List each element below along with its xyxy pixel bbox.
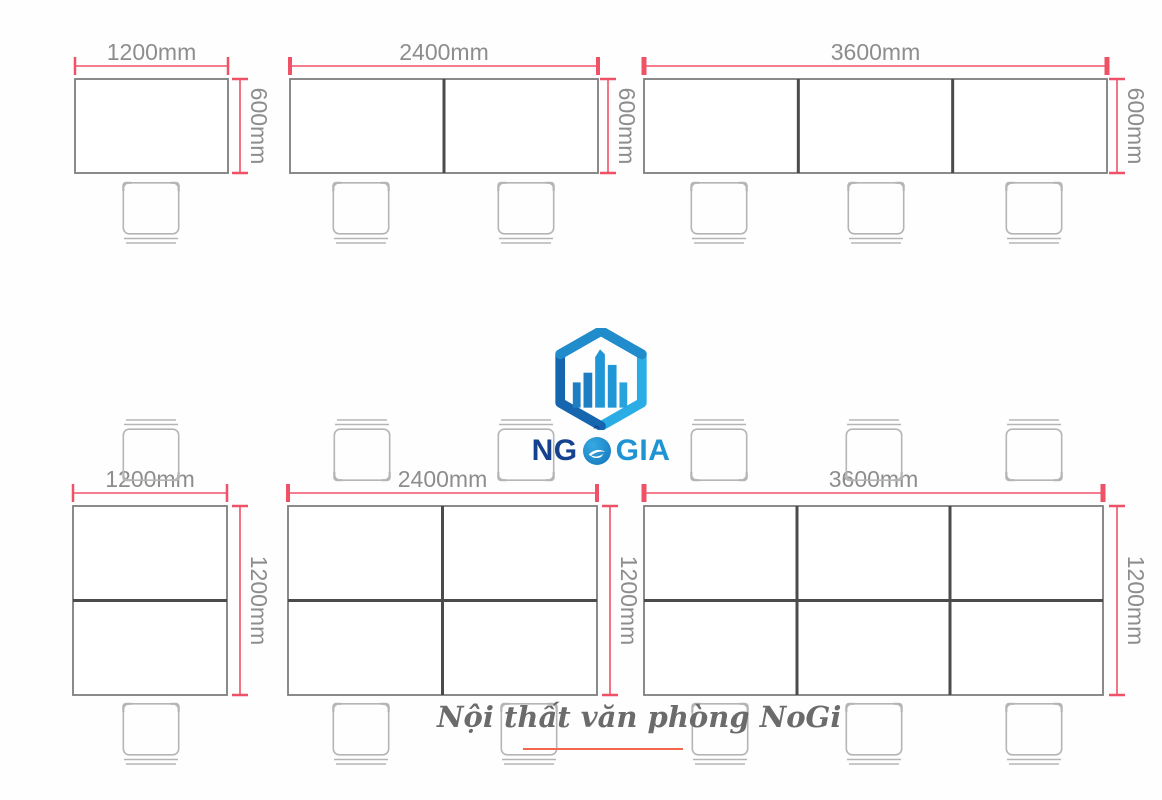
caption-underline (523, 748, 683, 750)
wordmark-o-emblem: ˆ (583, 437, 611, 465)
brand-logo: NG ˆ GIA (501, 328, 701, 468)
width-dimension-label: 3600mm (831, 39, 920, 65)
desk-surface (75, 79, 228, 173)
width-dimension-label: 2400mm (399, 39, 488, 65)
desk-1200x1200: 1200mm1200mm (73, 420, 272, 764)
dimension-diagram-page: 1200mm600mm2400mm600mm3600mm600mm1200mm1… (0, 0, 1162, 800)
chair (1006, 183, 1061, 243)
chair (333, 183, 388, 243)
wordmark-ng: NG (532, 434, 578, 468)
caption-text: Nội thất văn phòng NoGi (437, 700, 782, 734)
width-dimension-label: 1200mm (105, 466, 194, 492)
chair (691, 183, 746, 243)
hexagon-city-logo-icon (552, 328, 650, 430)
wordmark-gia: GIA (616, 434, 671, 468)
desk-2400x600: 2400mm600mm (290, 39, 640, 243)
chair (1006, 420, 1061, 480)
width-dimension-label: 2400mm (398, 466, 487, 492)
chair (123, 704, 178, 764)
boat-swoosh-icon (587, 444, 607, 458)
depth-dimension-label: 1200mm (246, 556, 272, 645)
chair (1006, 704, 1061, 764)
desk-1200x600: 1200mm600mm (75, 39, 272, 243)
desk-3600x600: 3600mm600mm (644, 39, 1149, 243)
circumflex-accent: ˆ (593, 424, 599, 441)
chair (848, 183, 903, 243)
chair (498, 183, 553, 243)
chair (846, 704, 901, 764)
width-dimension-label: 1200mm (107, 39, 196, 65)
depth-dimension-label: 1200mm (1123, 556, 1149, 645)
depth-dimension-label: 1200mm (616, 556, 642, 645)
depth-dimension-label: 600mm (246, 88, 272, 165)
depth-dimension-label: 600mm (1123, 88, 1149, 165)
chair (334, 420, 389, 480)
width-dimension-label: 3600mm (829, 466, 918, 492)
chair (333, 704, 388, 764)
chair (123, 183, 178, 243)
city-skyline (573, 349, 627, 407)
brand-wordmark: NG ˆ GIA (501, 434, 701, 468)
desk-surface (644, 79, 1107, 173)
depth-dimension-label: 600mm (614, 88, 640, 165)
